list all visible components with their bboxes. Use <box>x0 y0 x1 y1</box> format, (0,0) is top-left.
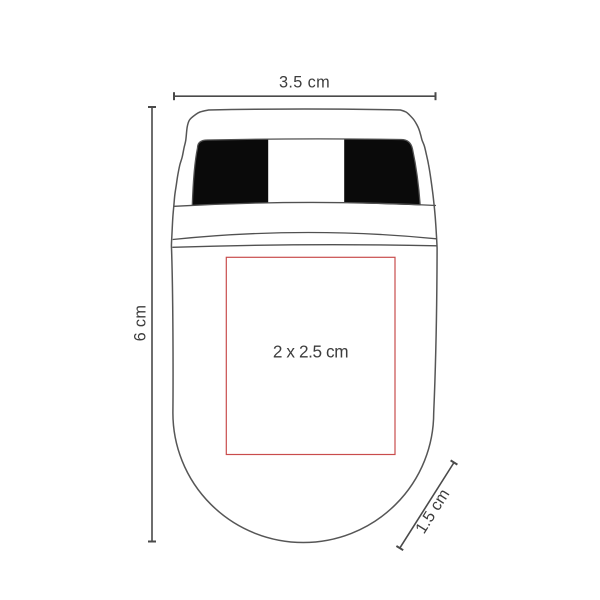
svg-text:6 cm: 6 cm <box>131 305 149 342</box>
svg-text:3.5 cm: 3.5 cm <box>279 74 330 92</box>
svg-text:2 x 2.5 cm: 2 x 2.5 cm <box>273 342 348 362</box>
svg-text:1.5 cm: 1.5 cm <box>412 486 453 537</box>
